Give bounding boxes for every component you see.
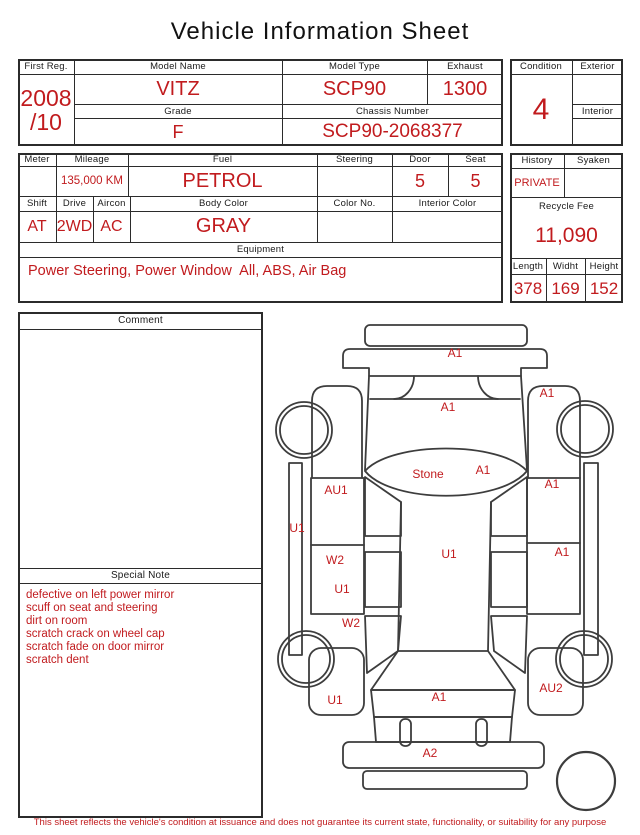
special-note-line: scratch dent bbox=[26, 654, 256, 667]
exhaust-value: 1300 bbox=[427, 74, 503, 104]
front-bumper bbox=[343, 349, 547, 376]
comment-label: Comment bbox=[18, 312, 263, 329]
comment-box bbox=[18, 312, 263, 818]
mileage-value: 135,000 KM bbox=[56, 166, 128, 196]
fuel-label: Fuel bbox=[128, 153, 317, 166]
model-name-label: Model Name bbox=[74, 59, 282, 74]
equipment-label: Equipment bbox=[18, 242, 503, 257]
headlight-arc-left bbox=[394, 376, 414, 399]
syaken-value bbox=[564, 168, 623, 197]
drive-label: Drive bbox=[56, 196, 93, 211]
color-no-value bbox=[317, 211, 392, 242]
height-value: 152 bbox=[585, 274, 623, 303]
seat-label: Seat bbox=[448, 153, 503, 166]
model-type-value: SCP90 bbox=[282, 74, 427, 104]
recycle-fee-label: Recycle Fee bbox=[510, 199, 623, 213]
sill-left bbox=[289, 463, 302, 655]
wheel-front-left-inner bbox=[280, 406, 328, 454]
special-note-label: Special Note bbox=[18, 568, 263, 583]
meter-label: Meter bbox=[18, 153, 56, 166]
door-label: Door bbox=[392, 153, 448, 166]
headlight-arc-right bbox=[478, 376, 498, 399]
disclaimer-text: This sheet reflects the vehicle's condit… bbox=[0, 817, 640, 828]
quarter-window-left bbox=[365, 616, 401, 673]
history-value: PRIVATE bbox=[510, 168, 564, 197]
rear-window bbox=[371, 651, 515, 690]
rear-door-window-left bbox=[365, 552, 401, 607]
special-note-text: defective on left power mirrorscuff on s… bbox=[26, 589, 256, 667]
exhaust-label: Exhaust bbox=[427, 59, 503, 74]
door-value: 5 bbox=[392, 166, 448, 196]
windshield bbox=[365, 449, 527, 496]
damage-code-label: A2 bbox=[423, 746, 438, 760]
condition-value: 4 bbox=[510, 74, 572, 146]
first-reg-month: /10 bbox=[30, 110, 62, 134]
interior-value bbox=[572, 118, 623, 146]
rear-lower-panel bbox=[374, 717, 512, 742]
width-label: Widht bbox=[546, 258, 585, 274]
front-strip bbox=[365, 325, 527, 346]
length-label: Length bbox=[510, 258, 546, 274]
damage-code-label: U1 bbox=[327, 693, 343, 707]
damage-code-label: U1 bbox=[441, 547, 457, 561]
car-damage-diagram: A1A1A1StoneA1AU1A1U1W2U1A1U1W2U1A1AU2A2 bbox=[263, 308, 640, 815]
color-no-label: Color No. bbox=[317, 196, 392, 211]
body-color-label: Body Color bbox=[130, 196, 317, 211]
body-color-value: GRAY bbox=[130, 211, 317, 242]
damage-code-label: A1 bbox=[555, 545, 570, 559]
height-label: Height bbox=[585, 258, 623, 274]
damage-code-label: A1 bbox=[540, 386, 555, 400]
equipment-value: Power Steering, Power Window All, ABS, A… bbox=[18, 257, 513, 309]
damage-code-label: A1 bbox=[545, 477, 560, 491]
width-value: 169 bbox=[546, 274, 585, 303]
doors-right bbox=[527, 478, 580, 614]
aircon-value: AC bbox=[93, 211, 130, 242]
drive-value: 2WD bbox=[56, 211, 93, 242]
interior-label: Interior bbox=[572, 104, 623, 118]
history-label: History bbox=[510, 153, 564, 168]
damage-code-label: AU1 bbox=[324, 483, 348, 497]
special-note-line: scuff on seat and steering bbox=[26, 602, 256, 615]
damage-code-label: W2 bbox=[326, 553, 344, 567]
mileage-label: Mileage bbox=[56, 153, 128, 166]
vehicle-information-sheet: Vehicle Information Sheet First Reg. 200… bbox=[0, 0, 640, 835]
interior-color-value bbox=[392, 211, 503, 242]
meter-value bbox=[18, 166, 56, 196]
grade-value: F bbox=[74, 118, 282, 146]
rear-door-window-right bbox=[491, 552, 527, 607]
damage-code-label: U1 bbox=[289, 521, 305, 535]
interior-color-label: Interior Color bbox=[392, 196, 503, 211]
steering-label: Steering bbox=[317, 153, 392, 166]
recycle-fee-value: 11,090 bbox=[510, 213, 623, 258]
grade-label: Grade bbox=[74, 104, 282, 118]
a-pillar-right bbox=[521, 376, 527, 470]
rear-bumper bbox=[343, 742, 544, 768]
page-title: Vehicle Information Sheet bbox=[0, 18, 640, 46]
spare-tire bbox=[557, 752, 615, 810]
wheel-front-left bbox=[276, 402, 332, 458]
steering-value bbox=[317, 166, 392, 196]
special-note-line: scratch fade on door mirror bbox=[26, 641, 256, 654]
shift-value: AT bbox=[18, 211, 56, 242]
fuel-value: PETROL bbox=[128, 166, 317, 196]
front-fender-left bbox=[312, 386, 362, 478]
chassis-number-label: Chassis Number bbox=[282, 104, 503, 118]
condition-label: Condition bbox=[510, 59, 572, 74]
length-value: 378 bbox=[510, 274, 546, 303]
chassis-number-value: SCP90-2068377 bbox=[282, 118, 503, 146]
model-name-value: VITZ bbox=[74, 74, 282, 104]
special-note-line: scratch crack on wheel cap bbox=[26, 628, 256, 641]
shift-label: Shift bbox=[18, 196, 56, 211]
special-note-line: dirt on room bbox=[26, 615, 256, 628]
wheel-front-right-inner bbox=[561, 405, 609, 453]
first-reg-year: 2008 bbox=[20, 86, 71, 110]
wheel-rear-left bbox=[278, 631, 334, 687]
wheel-front-right bbox=[557, 401, 613, 457]
comment-value bbox=[22, 334, 259, 354]
exterior-label: Exterior bbox=[572, 59, 623, 74]
exterior-value bbox=[572, 74, 623, 104]
aircon-label: Aircon bbox=[93, 196, 130, 211]
front-window-right bbox=[491, 477, 527, 536]
damage-code-label: A1 bbox=[448, 346, 463, 360]
first-reg-value: 2008 /10 bbox=[18, 74, 74, 146]
first-reg-label: First Reg. bbox=[18, 59, 74, 74]
syaken-label: Syaken bbox=[564, 153, 623, 168]
front-window-left bbox=[365, 477, 401, 536]
damage-code-label: U1 bbox=[334, 582, 350, 596]
damage-code-label: AU2 bbox=[539, 681, 563, 695]
car-outline bbox=[276, 325, 615, 810]
damage-code-label: A1 bbox=[432, 690, 447, 704]
special-note-line: defective on left power mirror bbox=[26, 589, 256, 602]
model-type-label: Model Type bbox=[282, 59, 427, 74]
damage-code-label: W2 bbox=[342, 616, 360, 630]
seat-value: 5 bbox=[448, 166, 503, 196]
damage-code-label: A1 bbox=[441, 400, 456, 414]
rear-bottom-strip bbox=[363, 771, 527, 789]
damage-code-label: A1 bbox=[476, 463, 491, 477]
a-pillar-left bbox=[365, 376, 369, 470]
sill-right bbox=[584, 463, 598, 655]
wheel-rear-left-inner bbox=[282, 635, 330, 683]
damage-code-label: Stone bbox=[412, 467, 444, 481]
